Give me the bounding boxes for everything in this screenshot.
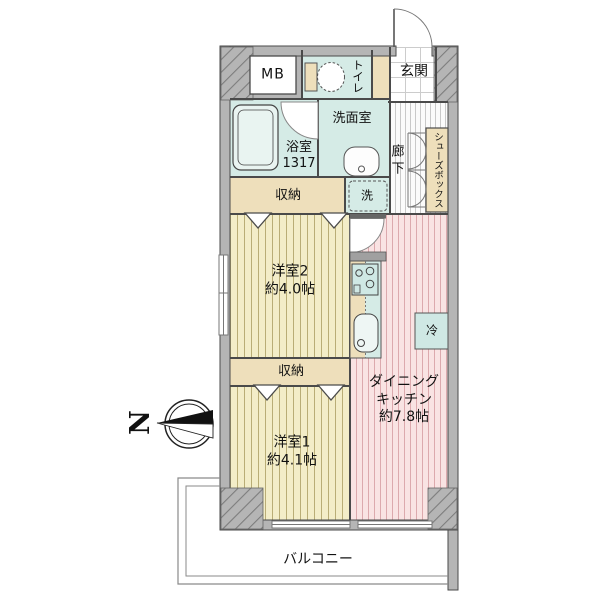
storage-upper-label: 収納 bbox=[275, 188, 301, 204]
dining-kitchen-label: ダイニング キッチン 約7.8帖 bbox=[369, 374, 439, 427]
floor-plan: MB トイレ 玄関 浴室 1317 洗面室 廊下 シューズボックス 収納 洗 洋… bbox=[0, 0, 600, 600]
kitchen-counter bbox=[350, 252, 386, 358]
toilet-icon bbox=[305, 63, 345, 92]
washbasin-icon bbox=[344, 147, 379, 176]
bathtub-icon bbox=[233, 105, 278, 170]
plan-linework bbox=[0, 0, 600, 600]
western-room2-label: 洋室2 約4.0帖 bbox=[265, 264, 315, 299]
compass-north-label: N bbox=[125, 410, 156, 435]
entrance-label: 玄関 bbox=[400, 63, 428, 81]
shoe-box-door-arc-bottom bbox=[408, 171, 426, 207]
sink-icon bbox=[354, 314, 378, 352]
hallway-label: 廊下 bbox=[387, 144, 406, 178]
western-room1-label: 洋室1 約4.1帖 bbox=[267, 435, 317, 470]
compass bbox=[157, 400, 213, 448]
entrance-door bbox=[394, 9, 432, 47]
dk-door bbox=[350, 214, 386, 253]
storage-lower-label: 収納 bbox=[278, 364, 304, 380]
mb-label: MB bbox=[261, 66, 285, 84]
bathroom-label: 浴室 1317 bbox=[282, 140, 315, 173]
toilet-label: トイレ bbox=[350, 59, 366, 94]
washroom-label: 洗面室 bbox=[332, 111, 371, 127]
laundry-label: 洗 bbox=[361, 189, 373, 204]
balcony-label: バルコニー bbox=[283, 551, 353, 569]
bathroom-door bbox=[281, 102, 318, 139]
shoe-box-label: シューズボックス bbox=[430, 132, 444, 208]
stove-icon bbox=[352, 264, 378, 295]
refrigerator-label: 冷 bbox=[426, 324, 438, 339]
shoe-box-door-arc-top bbox=[408, 133, 426, 169]
